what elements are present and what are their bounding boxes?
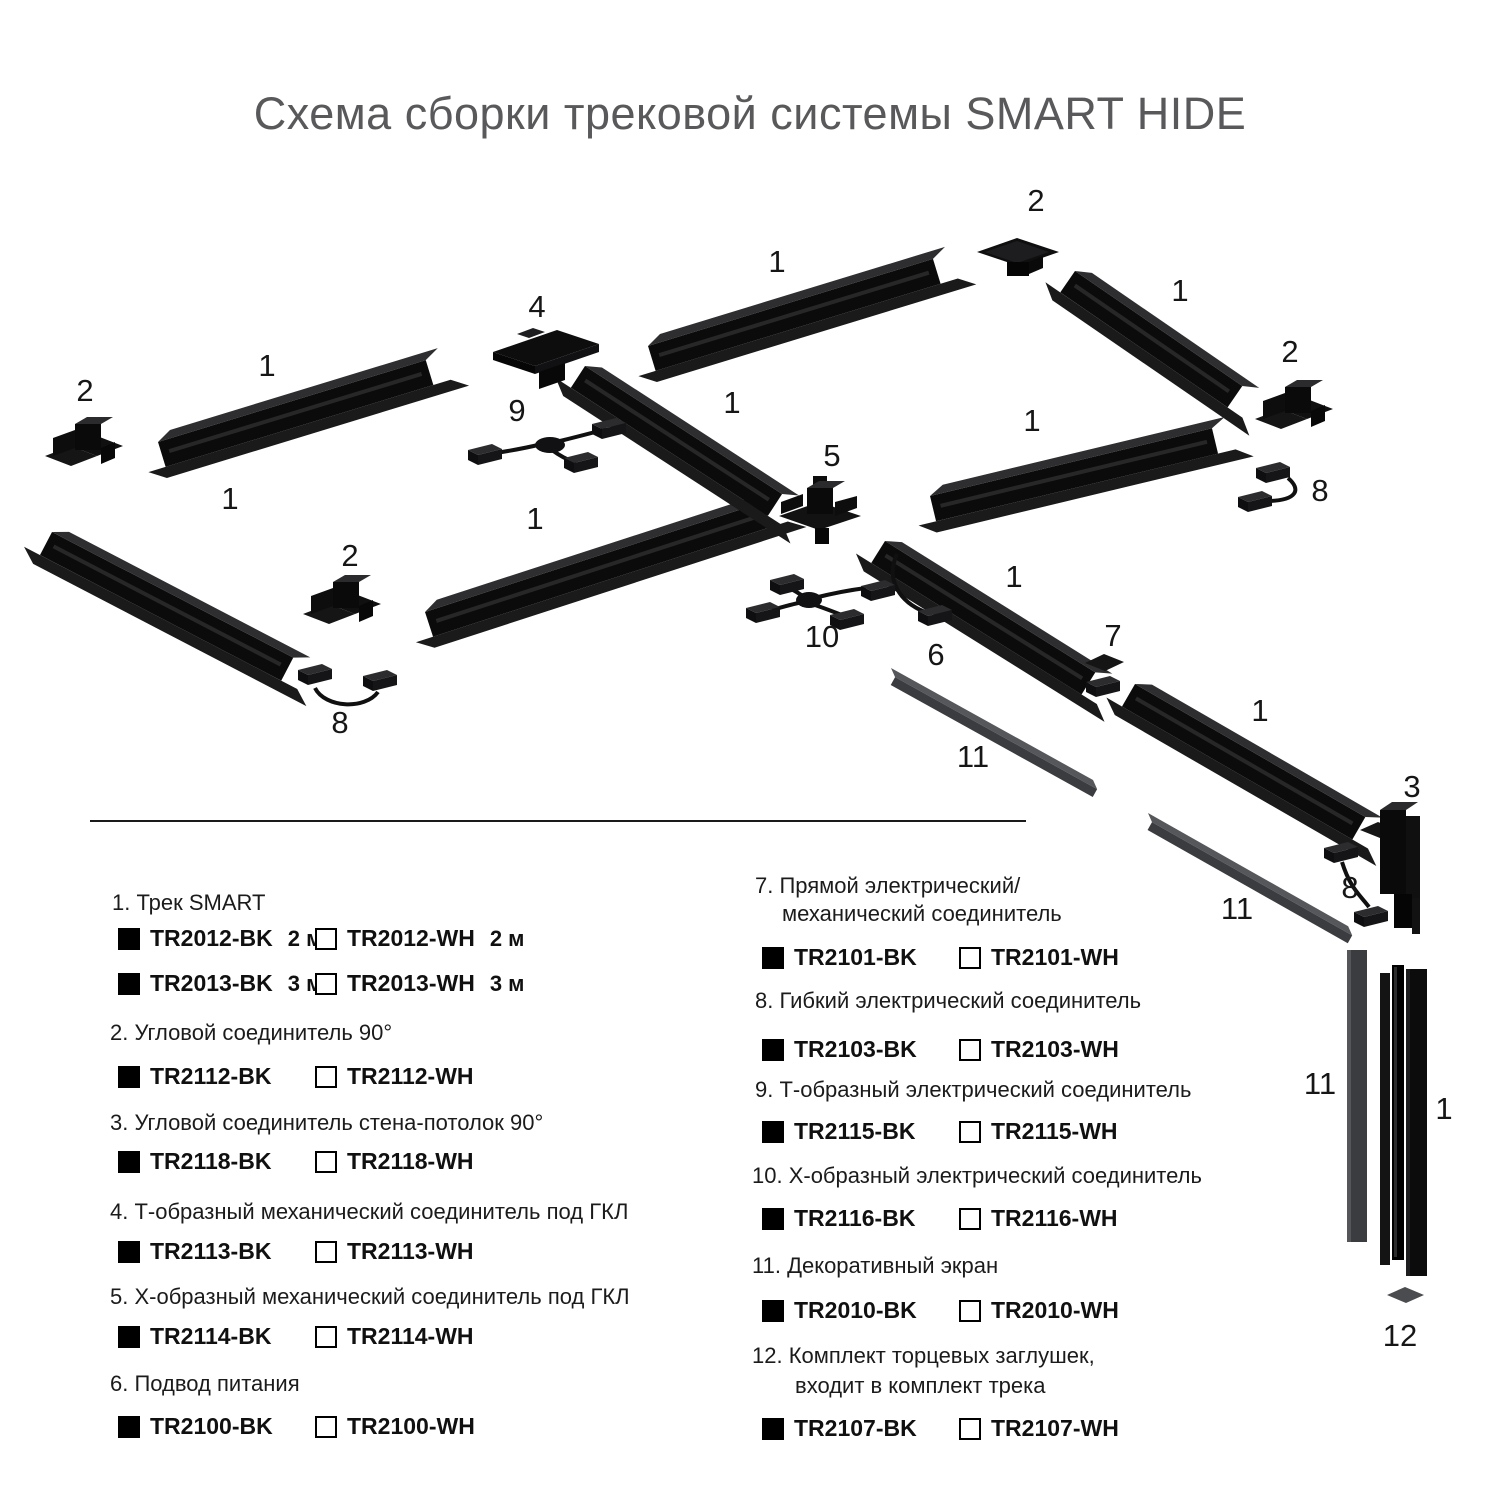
length-label: 3 м — [490, 971, 525, 997]
legend-item-7-name-line2: механический соединитель — [782, 901, 1062, 927]
label-corner-bottom: 2 — [341, 538, 358, 574]
product-code: TR2118-BK — [150, 1148, 271, 1175]
code-group-wh: TR2114-WH — [315, 1323, 474, 1350]
legend-item-10-name: 10. Х-образный электрический соединитель — [752, 1163, 1202, 1189]
legend-item-12-name-line2: входит в комплект трека — [795, 1373, 1045, 1399]
white-swatch — [959, 1300, 981, 1322]
label-track-to-wall-lower: 1 — [1251, 693, 1268, 729]
product-code: TR2115-WH — [991, 1118, 1118, 1145]
corner-connector-bottom — [303, 575, 381, 624]
label-x-elec-connector: 10 — [805, 619, 839, 655]
legend-item-9-row: TR2115-BK TR2115-WH — [762, 1118, 1322, 1142]
white-swatch — [315, 1416, 337, 1438]
code-group-bk: TR2013-BK 3 м — [118, 970, 322, 997]
label-track-vertical: 1 — [1435, 1091, 1452, 1127]
legend-item-7-name: 7. Прямой электрический/ — [755, 873, 1020, 899]
label-screen-upper: 11 — [957, 739, 989, 775]
black-swatch — [118, 1326, 140, 1348]
label-track-central: 1 — [723, 385, 740, 421]
product-code: TR2114-BK — [150, 1323, 271, 1350]
label-track-top-middle: 1 — [768, 244, 785, 280]
product-code: TR2012-BK — [150, 925, 273, 952]
corner-connector-left — [45, 417, 123, 466]
white-swatch — [959, 1121, 981, 1143]
legend-item-12-name: 12. Комплект торцевых заглушек, — [752, 1343, 1095, 1369]
legend-item-10-row: TR2116-BK TR2116-WH — [762, 1205, 1322, 1229]
product-code: TR2013-WH — [347, 970, 475, 997]
label-corner-top: 2 — [1027, 183, 1044, 219]
smart-hide-assembly-sheet: { "title": "Схема сборки трековой систем… — [0, 0, 1500, 1500]
legend-item-6-name: 6. Подвод питания — [110, 1371, 300, 1397]
code-group-bk: TR2107-BK — [762, 1415, 917, 1442]
legend-item-5-row: TR2114-BK TR2114-WH — [118, 1323, 678, 1347]
product-code: TR2115-BK — [794, 1118, 915, 1145]
legend-item-2-name: 2. Угловой соединитель 90° — [110, 1020, 392, 1046]
black-swatch — [118, 928, 140, 950]
assembly-diagram — [0, 150, 1500, 1360]
code-group-bk: TR2100-BK — [118, 1413, 273, 1440]
label-track-to-wall-upper: 1 — [1005, 559, 1022, 595]
product-code: TR2103-BK — [794, 1036, 917, 1063]
page-title: Схема сборки трековой системы SMART HIDE — [0, 88, 1500, 140]
code-group-wh: TR2012-WH 2 м — [315, 925, 524, 952]
code-group-bk: TR2101-BK — [762, 944, 917, 971]
legend-item-9-name: 9. Т-образный электрический соединитель — [755, 1077, 1191, 1103]
track-to-wall-lower — [1101, 668, 1399, 866]
code-group-wh: TR2115-WH — [959, 1118, 1118, 1145]
black-swatch — [762, 947, 784, 969]
label-power-feed: 6 — [927, 637, 944, 673]
x-mechanical-connector — [779, 476, 861, 544]
label-wall-corner: 3 — [1403, 769, 1420, 805]
label-t-elec-connector: 9 — [508, 393, 525, 429]
black-swatch — [118, 1151, 140, 1173]
white-swatch — [959, 1208, 981, 1230]
legend-item-11-name: 11. Декоративный экран — [752, 1253, 998, 1279]
track-top-middle — [628, 241, 976, 386]
legend-item-2-row: TR2112-BK TR2112-WH — [118, 1063, 678, 1087]
legend-item-8-row: TR2103-BK TR2103-WH — [762, 1036, 1322, 1060]
code-group-wh: TR2010-WH — [959, 1297, 1119, 1324]
product-code: TR2012-WH — [347, 925, 475, 952]
legend-item-1-row-2: TR2013-BK 3 м TR2013-WH 3 м — [118, 970, 678, 994]
legend-item-3-name: 3. Угловой соединитель стена-потолок 90° — [110, 1110, 543, 1136]
white-swatch — [315, 1066, 337, 1088]
track-right-bottom — [911, 413, 1254, 537]
black-swatch — [762, 1300, 784, 1322]
legend-item-4-row: TR2113-BK TR2113-WH — [118, 1238, 678, 1262]
code-group-wh: TR2103-WH — [959, 1036, 1119, 1063]
product-code: TR2107-BK — [794, 1415, 917, 1442]
label-flex-connector-wall: 8 — [1341, 870, 1358, 906]
legend-item-12-row: TR2107-BK TR2107-WH — [762, 1415, 1322, 1439]
code-group-bk: TR2116-BK — [762, 1205, 915, 1232]
product-code: TR2114-WH — [347, 1323, 474, 1350]
code-group-wh: TR2107-WH — [959, 1415, 1119, 1442]
corner-connector-right — [1255, 380, 1333, 429]
end-cap — [1387, 1287, 1424, 1303]
black-swatch — [762, 1418, 784, 1440]
label-flex-connector-right: 8 — [1311, 473, 1328, 509]
product-code: TR2112-BK — [150, 1063, 271, 1090]
track-right-top — [1039, 254, 1275, 436]
label-screen-vertical: 11 — [1304, 1066, 1336, 1102]
label-track-bottom-left: 1 — [526, 501, 543, 537]
product-code: TR2101-WH — [991, 944, 1119, 971]
track-top-left — [138, 343, 469, 483]
code-group-wh: TR2118-WH — [315, 1148, 474, 1175]
code-group-bk: TR2115-BK — [762, 1118, 915, 1145]
white-swatch — [959, 1039, 981, 1061]
product-code: TR2100-WH — [347, 1413, 475, 1440]
product-code: TR2103-WH — [991, 1036, 1119, 1063]
black-swatch — [762, 1121, 784, 1143]
legend-item-1-row-1: TR2012-BK 2 м TR2012-WH 2 м — [118, 925, 678, 949]
label-x-mech-connector: 5 — [823, 438, 840, 474]
label-corner-left: 2 — [76, 373, 93, 409]
label-t-mech-connector: 4 — [528, 289, 545, 325]
white-swatch — [315, 1326, 337, 1348]
white-swatch — [315, 928, 337, 950]
legend-item-6-row: TR2100-BK TR2100-WH — [118, 1413, 678, 1437]
code-group-wh: TR2013-WH 3 м — [315, 970, 524, 997]
product-code: TR2101-BK — [794, 944, 917, 971]
code-group-wh: TR2113-WH — [315, 1238, 474, 1265]
decorative-screen-vertical — [1347, 950, 1367, 1242]
label-track-right-top: 1 — [1171, 273, 1188, 309]
white-swatch — [959, 1418, 981, 1440]
code-group-bk: TR2103-BK — [762, 1036, 917, 1063]
track-left-side — [19, 517, 327, 707]
code-group-wh: TR2100-WH — [315, 1413, 475, 1440]
product-code: TR2013-BK — [150, 970, 273, 997]
code-group-bk: TR2012-BK 2 м — [118, 925, 322, 952]
label-track-top-left: 1 — [258, 348, 275, 384]
code-group-bk: TR2114-BK — [118, 1323, 271, 1350]
product-code: TR2100-BK — [150, 1413, 273, 1440]
code-group-wh: TR2116-WH — [959, 1205, 1118, 1232]
label-straight-connector: 7 — [1104, 618, 1121, 654]
legend-item-1-name: 1. Трек SMART — [112, 890, 265, 916]
white-swatch — [959, 947, 981, 969]
label-corner-right: 2 — [1281, 334, 1298, 370]
t-electrical-connector — [468, 418, 626, 473]
white-swatch — [315, 1151, 337, 1173]
black-swatch — [118, 1066, 140, 1088]
legend-item-8-name: 8. Гибкий электрический соединитель — [755, 988, 1141, 1014]
legend-item-11-row: TR2010-BK TR2010-WH — [762, 1297, 1322, 1321]
legend-item-4-name: 4. Т-образный механический соединитель п… — [110, 1199, 628, 1225]
label-screen-lower: 11 — [1221, 891, 1253, 927]
code-group-bk: TR2118-BK — [118, 1148, 271, 1175]
code-group-wh: TR2112-WH — [315, 1063, 474, 1090]
track-central — [550, 349, 815, 543]
label-track-right-bottom: 1 — [1023, 403, 1040, 439]
flexible-connector-left — [298, 664, 397, 704]
black-swatch — [118, 1416, 140, 1438]
legend-divider — [90, 820, 1026, 822]
code-group-bk: TR2010-BK — [762, 1297, 917, 1324]
product-code: TR2113-BK — [150, 1238, 271, 1265]
white-swatch — [315, 1241, 337, 1263]
track-vertical-wall — [1380, 965, 1427, 1276]
code-group-bk: TR2113-BK — [118, 1238, 271, 1265]
length-label: 2 м — [490, 926, 525, 952]
flexible-connector-right — [1238, 462, 1295, 512]
code-group-wh: TR2101-WH — [959, 944, 1119, 971]
product-code: TR2118-WH — [347, 1148, 474, 1175]
product-code: TR2116-BK — [794, 1205, 915, 1232]
black-swatch — [762, 1039, 784, 1061]
black-swatch — [118, 1241, 140, 1263]
legend-item-5-name: 5. Х-образный механический соединитель п… — [110, 1284, 630, 1310]
product-code: TR2113-WH — [347, 1238, 474, 1265]
legend-item-3-row: TR2118-BK TR2118-WH — [118, 1148, 678, 1172]
label-track-left-side: 1 — [221, 481, 238, 517]
product-code: TR2010-WH — [991, 1297, 1119, 1324]
product-code: TR2010-BK — [794, 1297, 917, 1324]
black-swatch — [762, 1208, 784, 1230]
black-swatch — [118, 973, 140, 995]
corner-connector-top — [977, 238, 1059, 276]
legend-item-7-row: TR2101-BK TR2101-WH — [762, 944, 1322, 968]
product-code: TR2107-WH — [991, 1415, 1119, 1442]
label-end-cap: 12 — [1383, 1318, 1417, 1354]
code-group-bk: TR2112-BK — [118, 1063, 271, 1090]
product-code: TR2116-WH — [991, 1205, 1118, 1232]
white-swatch — [315, 973, 337, 995]
product-code: TR2112-WH — [347, 1063, 474, 1090]
label-flex-connector-left: 8 — [331, 705, 348, 741]
